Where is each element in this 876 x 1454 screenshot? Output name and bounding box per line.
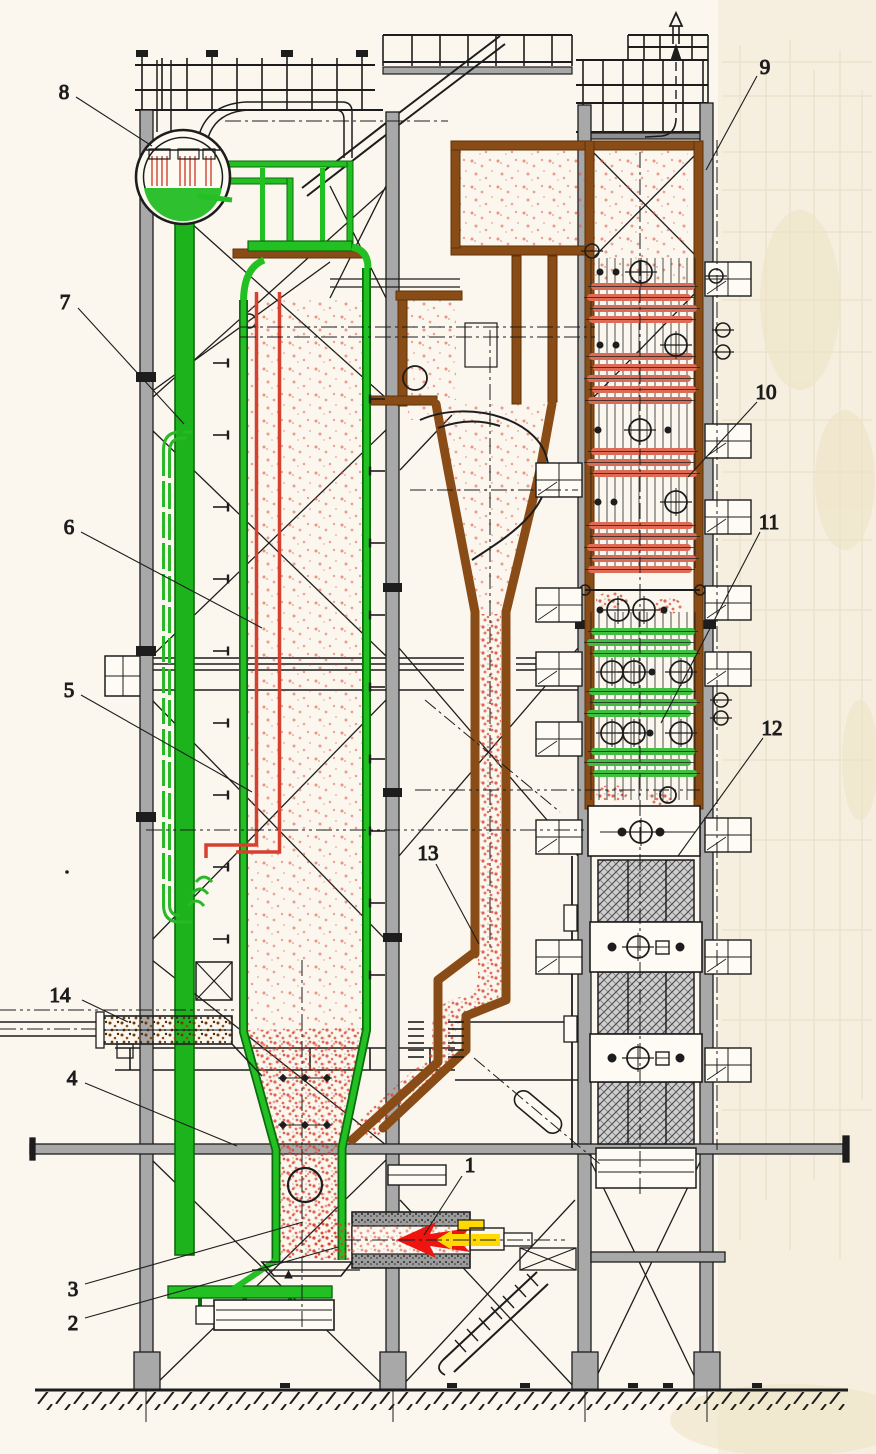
ash-box — [214, 1300, 334, 1330]
boiler-sectional-drawing: 8 7 6 5 14 4 3 2 1 13 9 10 — [0, 0, 876, 1454]
callout-label: 14 — [50, 983, 72, 1007]
callout-label: 9 — [760, 55, 771, 79]
callout-label: 10 — [756, 380, 777, 404]
callout-label: 2 — [68, 1311, 79, 1335]
callout-label: 8 — [59, 80, 70, 104]
backpass-roof — [451, 141, 703, 150]
callout-label: 3 — [68, 1277, 79, 1301]
economizer-banks — [584, 628, 700, 777]
stray-ink-dot — [65, 870, 69, 874]
callout-label: 1 — [465, 1153, 476, 1177]
callout-label: 6 — [64, 515, 75, 539]
callout-label: 5 — [64, 678, 75, 702]
backpass-left-wall — [585, 141, 594, 809]
callout-label: 4 — [67, 1066, 78, 1090]
upper-header — [248, 241, 352, 251]
callout-label: 13 — [418, 841, 439, 865]
callout-label: 12 — [762, 716, 783, 740]
callout-label: 7 — [60, 290, 71, 314]
drawing-canvas: 8 7 6 5 14 4 3 2 1 13 9 10 — [0, 0, 876, 1454]
callout-label: 11 — [759, 510, 779, 534]
